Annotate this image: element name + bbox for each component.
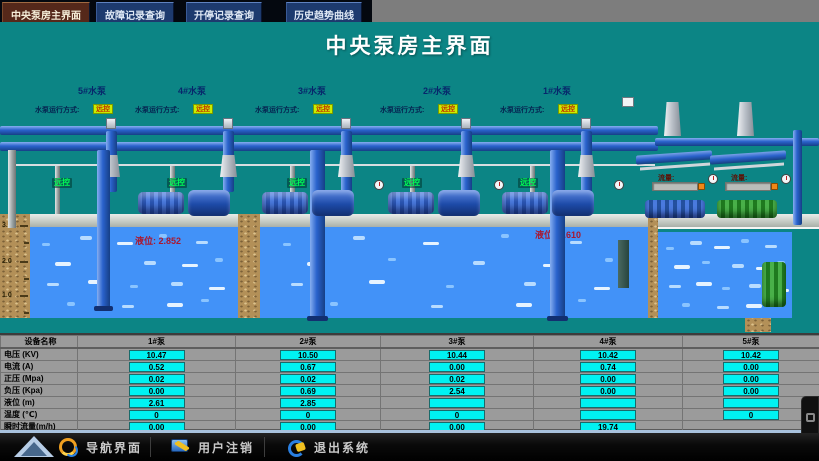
value-readout — [580, 398, 636, 408]
water-highlight — [765, 245, 777, 248]
value-cell: 0.67 — [236, 361, 381, 373]
pressure-gauge-5 — [781, 174, 791, 184]
indicator-box — [622, 97, 634, 107]
table-header-cell: 5#泵 — [683, 336, 819, 349]
value-cell: 0.74 — [534, 361, 683, 373]
water-highlight — [196, 241, 208, 244]
level-scale-mark: 1.0 — [2, 292, 12, 299]
table-header-cell: 2#泵 — [236, 336, 381, 349]
value-readout: 0 — [129, 410, 185, 420]
value-cell: 10.50 — [236, 348, 381, 361]
water-highlight — [182, 264, 198, 267]
value-cell — [381, 397, 534, 409]
water-highlight — [570, 241, 582, 244]
value-readout: 0.00 — [129, 386, 185, 396]
water-highlight — [55, 262, 71, 266]
value-readout: 0.00 — [429, 362, 485, 372]
value-readout: 0.00 — [723, 374, 779, 384]
remote-mode-tag-5: 远控 — [518, 178, 538, 188]
pipe-reducer-5 — [578, 155, 595, 177]
value-readout: 2.85 — [280, 398, 336, 408]
water-highlight — [167, 303, 183, 307]
footer-button-label: 用户注销 — [198, 439, 254, 456]
water-highlight — [215, 258, 223, 262]
aux-value-box-2 — [725, 182, 771, 191]
value-cell: 10.42 — [534, 348, 683, 361]
water-highlight — [353, 236, 365, 240]
water-highlight — [749, 284, 761, 288]
device-data-table-wrap: 设备名称1#泵2#泵3#泵4#泵5#泵电压 (KV)10.4710.5010.4… — [0, 333, 819, 430]
footer-button-logout[interactable]: 用户注销 — [170, 435, 254, 459]
value-cell: 0 — [236, 409, 381, 421]
value-cell: 10.44 — [381, 348, 534, 361]
water-highlight — [732, 264, 744, 268]
water-highlight — [330, 302, 338, 306]
sump-pump-green — [762, 262, 786, 307]
aux-rail-2 — [714, 163, 784, 171]
water-highlight — [47, 283, 59, 286]
water-highlight — [578, 299, 586, 302]
value-readout: 10.42 — [723, 350, 779, 360]
value-cell: 0.00 — [683, 385, 819, 397]
footer-button-label: 退出系统 — [314, 439, 370, 456]
value-cell: 0.00 — [534, 385, 683, 397]
pump-name-label-4: 2#水泵 — [402, 84, 472, 97]
water-highlight — [130, 285, 138, 288]
pump-mode-value-5: 远控 — [558, 104, 578, 114]
pump-unit-2 — [262, 190, 354, 216]
water-highlight — [122, 305, 134, 308]
value-readout: 2.61 — [129, 398, 185, 408]
pump-room-diagram: 液位: 2.852液位: 2.6103.02.01.0远控远控远控远控远控流量:… — [0, 22, 819, 333]
level-scale-tick — [20, 225, 28, 227]
value-readout: 0.00 — [580, 374, 636, 384]
water-highlight — [696, 282, 712, 286]
tank-level-readout-1: 液位: 2.852 — [135, 234, 181, 247]
water-highlight — [746, 304, 762, 308]
value-cell: 0.00 — [683, 373, 819, 385]
value-cell — [534, 397, 683, 409]
remote-mode-tag-4: 远控 — [402, 178, 422, 188]
overlay-glyph-icon — [806, 413, 815, 422]
discharge-column-3 — [550, 150, 565, 318]
gray-pipe-left-edge — [8, 150, 16, 228]
row-label: 电流 (A) — [1, 361, 78, 373]
pump-unit-1 — [138, 190, 230, 216]
discharge-column-1 — [97, 150, 110, 308]
pump-name-label-1: 5#水泵 — [57, 84, 127, 97]
pump-name-label-5: 1#水泵 — [522, 84, 592, 97]
pump-motor — [388, 192, 434, 214]
water-highlight — [666, 247, 674, 250]
water-highlight — [594, 287, 610, 290]
water-highlight — [501, 234, 509, 238]
value-readout: 0.02 — [129, 374, 185, 384]
value-cell: 0.00 — [534, 373, 683, 385]
water-highlight — [291, 283, 303, 286]
footer-button-label: 导航界面 — [86, 439, 142, 456]
level-scale-tick — [20, 261, 28, 263]
tabbar-corner-panel — [372, 0, 819, 22]
pipe-reducer-3 — [338, 155, 355, 177]
pump-mode-value-1: 远控 — [93, 104, 113, 114]
soil-wall-left — [0, 214, 30, 318]
value-cell: 0.00 — [683, 361, 819, 373]
valve-bonnet-4 — [461, 118, 471, 129]
row-label: 负压 (Kpa) — [1, 385, 78, 397]
pump-mode-value-3: 远控 — [313, 104, 333, 114]
pump-motor — [502, 192, 548, 214]
footer-bar: 导航界面用户注销退出系统 — [0, 433, 819, 461]
valve-bonnet-2 — [223, 118, 233, 129]
pump-body — [438, 190, 480, 216]
value-readout: 10.44 — [429, 350, 485, 360]
pump-motor — [262, 192, 308, 214]
value-readout: 0.69 — [280, 386, 336, 396]
value-readout — [723, 398, 779, 408]
water-highlight — [524, 282, 536, 286]
level-scale-tick-minor — [24, 242, 29, 244]
water-highlight — [283, 243, 291, 246]
value-cell — [683, 397, 819, 409]
aux-pump-blue — [645, 200, 705, 218]
user-logout-icon — [170, 437, 190, 457]
tab-bar: 中央泵房主界面故障记录查询开停记录查询历史趋势曲线 — [0, 0, 819, 22]
tab-4[interactable]: 历史趋势曲线 — [286, 2, 362, 22]
water-highlight — [446, 285, 454, 288]
footer-button-nav[interactable]: 导航界面 — [58, 435, 142, 459]
value-readout — [580, 410, 636, 420]
nav-gears-icon — [58, 437, 78, 457]
level-scale-tick-minor — [24, 312, 29, 314]
value-readout: 0.02 — [429, 374, 485, 384]
value-cell: 0 — [78, 409, 236, 421]
water-highlight — [80, 236, 92, 240]
level-scale-mark: 2.0 — [2, 258, 12, 265]
table-row: 电流 (A)0.520.670.000.740.00 — [1, 361, 819, 373]
value-readout — [429, 398, 485, 408]
pump-mode-label-4: 水泵运行方式: — [380, 105, 424, 115]
water-highlight — [369, 280, 385, 284]
pump-mode-label-3: 水泵运行方式: — [255, 105, 299, 115]
footer-separator — [150, 437, 151, 457]
value-readout: 0 — [280, 410, 336, 420]
row-label: 电压 (KV) — [1, 348, 78, 361]
level-scale-tick-minor — [24, 278, 29, 280]
value-readout: 0 — [429, 410, 485, 420]
tab-1[interactable]: 中央泵房主界面 — [2, 2, 90, 22]
value-readout: 2.54 — [429, 386, 485, 396]
drain-column-dark — [618, 240, 629, 288]
table-header-cell: 4#泵 — [534, 336, 683, 349]
value-cell: 10.42 — [683, 348, 819, 361]
value-readout: 0.02 — [280, 374, 336, 384]
value-cell: 2.54 — [381, 385, 534, 397]
pump-unit-4 — [502, 190, 594, 216]
pressure-gauge-1 — [374, 180, 384, 190]
soil-divider-2 — [648, 214, 658, 318]
value-cell: 0 — [381, 409, 534, 421]
pressure-gauge-2 — [494, 180, 504, 190]
discharge-flange-2 — [307, 316, 328, 321]
pump-body — [552, 190, 594, 216]
remote-mode-tag-3: 远控 — [287, 178, 307, 188]
footer-separator — [264, 437, 265, 457]
water-highlight — [516, 303, 532, 307]
water-tank-1 — [30, 227, 238, 318]
water-highlight — [201, 299, 209, 302]
water-highlight — [702, 261, 710, 264]
level-scale-tick — [20, 295, 28, 297]
value-cell: 10.47 — [78, 348, 236, 361]
row-label: 正压 (Mpa) — [1, 373, 78, 385]
aux-pump-green — [717, 200, 777, 218]
discharge-column-2 — [310, 150, 325, 318]
value-readout: 0.74 — [580, 362, 636, 372]
value-readout: 0.00 — [723, 362, 779, 372]
pump-mode-value-4: 远控 — [438, 104, 458, 114]
manifold-pipe-upper — [0, 126, 658, 135]
value-cell: 0.02 — [236, 373, 381, 385]
pipe-reducer-4 — [458, 155, 475, 177]
water-highlight — [423, 242, 439, 245]
footer-button-exit[interactable]: 退出系统 — [286, 435, 370, 459]
value-cell: 0.52 — [78, 361, 236, 373]
row-label: 温度 (℃) — [1, 409, 78, 421]
water-highlight — [669, 285, 681, 288]
table-header-row: 设备名称1#泵2#泵3#泵4#泵5#泵 — [1, 336, 819, 349]
value-readout: 10.47 — [129, 350, 185, 360]
remote-mode-tag-1: 远控 — [52, 178, 72, 188]
water-highlight — [690, 241, 702, 245]
valve-handle-icon-2[interactable] — [771, 183, 778, 190]
water-highlight — [674, 265, 690, 269]
value-cell: 0.02 — [381, 373, 534, 385]
value-readout: 0 — [723, 410, 779, 420]
table-header-cell: 1#泵 — [78, 336, 236, 349]
valve-bonnet-1 — [106, 118, 116, 129]
value-readout: 0.67 — [280, 362, 336, 372]
value-cell: 0.00 — [78, 385, 236, 397]
water-highlight — [605, 258, 613, 262]
aux-reducer-2 — [737, 102, 754, 136]
aux-value-box-1 — [652, 182, 698, 191]
pressure-gauge-3 — [614, 180, 624, 190]
value-cell: 0.69 — [236, 385, 381, 397]
water-highlight — [209, 287, 225, 290]
value-cell: 2.61 — [78, 397, 236, 409]
value-readout: 0.52 — [129, 362, 185, 372]
pump-mode-value-2: 远控 — [193, 104, 213, 114]
water-highlight — [717, 306, 729, 309]
discharge-flange-1 — [94, 306, 113, 311]
valve-bonnet-5 — [581, 118, 591, 129]
value-cell: 0 — [683, 409, 819, 421]
table-header-cell: 设备名称 — [1, 336, 78, 349]
pump-body — [188, 190, 230, 216]
value-cell: 0.02 — [78, 373, 236, 385]
table-row: 负压 (Kpa)0.000.692.540.000.00 — [1, 385, 819, 397]
row-label: 液位 (m) — [1, 397, 78, 409]
water-highlight — [67, 302, 75, 306]
table-row: 液位 (m)2.612.85 — [1, 397, 819, 409]
value-readout: 10.42 — [580, 350, 636, 360]
tab-3[interactable]: 开停记录查询 — [186, 2, 262, 22]
pump-mode-label-5: 水泵运行方式: — [500, 105, 544, 115]
pipe-reducer-2 — [220, 155, 237, 177]
valve-handle-icon-1[interactable] — [698, 183, 705, 190]
water-highlight — [171, 282, 183, 286]
pump-motor — [138, 192, 184, 214]
table-row: 电压 (KV)10.4710.5010.4410.4210.42 — [1, 348, 819, 361]
pressure-gauge-4 — [708, 174, 718, 184]
water-highlight — [144, 261, 156, 265]
value-cell — [534, 409, 683, 421]
discharge-flange-3 — [547, 316, 568, 321]
device-data-table: 设备名称1#泵2#泵3#泵4#泵5#泵电压 (KV)10.4710.5010.4… — [0, 335, 819, 433]
water-highlight — [473, 261, 485, 265]
water-highlight — [714, 246, 730, 249]
right-edge-pipe — [793, 130, 802, 225]
exit-system-icon — [286, 437, 306, 457]
pump-mode-label-2: 水泵运行方式: — [135, 105, 179, 115]
value-readout: 0.00 — [723, 386, 779, 396]
tab-2[interactable]: 故障记录查询 — [96, 2, 174, 22]
value-readout: 10.50 — [280, 350, 336, 360]
pump-mode-label-1: 水泵运行方式: — [35, 105, 79, 115]
table-header-cell: 3#泵 — [381, 336, 534, 349]
scada-main-screen: 中央泵房主界面故障记录查询开停记录查询历史趋势曲线 中央泵房主界面 液位: 2.… — [0, 0, 819, 461]
pump-name-label-2: 4#水泵 — [157, 84, 227, 97]
remote-mode-tag-2: 远控 — [167, 178, 187, 188]
water-highlight — [42, 243, 50, 246]
table-row: 温度 (℃)0000 — [1, 409, 819, 421]
suction-pipe-1 — [55, 166, 60, 214]
value-cell: 2.85 — [236, 397, 381, 409]
value-cell: 0.00 — [381, 361, 534, 373]
aux-reducer-1 — [664, 102, 681, 136]
water-highlight — [741, 239, 749, 243]
value-readout: 0.00 — [580, 386, 636, 396]
pump-unit-3 — [388, 190, 480, 216]
pump-name-label-3: 3#水泵 — [277, 84, 347, 97]
valve-bonnet-3 — [341, 118, 351, 129]
table-row: 正压 (Mpa)0.020.020.020.000.00 — [1, 373, 819, 385]
water-highlight — [388, 258, 396, 261]
pump-body — [312, 190, 354, 216]
water-highlight — [117, 242, 133, 245]
soil-divider-1 — [238, 214, 260, 318]
water-highlight — [431, 305, 443, 308]
water-highlight — [722, 287, 730, 290]
water-highlight — [682, 303, 690, 307]
company-logo-icon — [14, 436, 54, 457]
